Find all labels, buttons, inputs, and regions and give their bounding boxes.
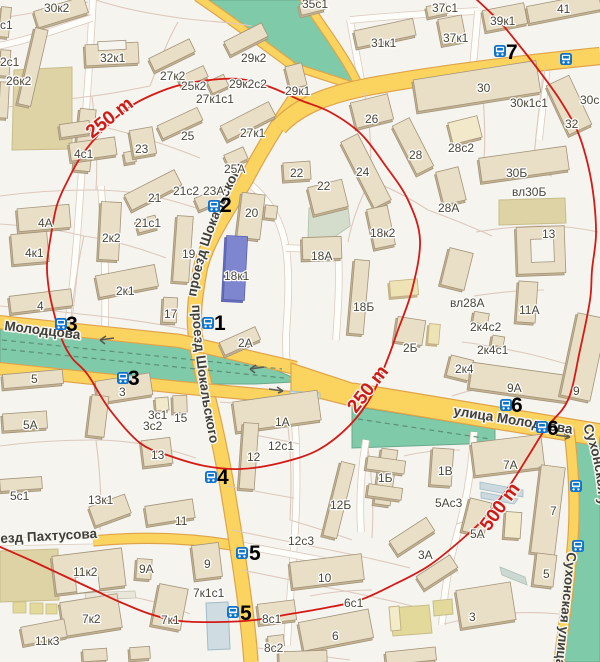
svg-text:25А: 25А bbox=[224, 162, 245, 176]
svg-text:5А: 5А bbox=[470, 527, 485, 541]
svg-text:6: 6 bbox=[547, 417, 559, 440]
svg-text:27к1: 27к1 bbox=[240, 126, 266, 140]
svg-text:вл30Б: вл30Б bbox=[512, 185, 546, 199]
svg-text:3: 3 bbox=[66, 313, 78, 336]
svg-text:32к1: 32к1 bbox=[100, 51, 126, 65]
svg-text:28: 28 bbox=[409, 148, 423, 162]
svg-text:4: 4 bbox=[217, 466, 229, 489]
svg-text:29к1: 29к1 bbox=[285, 84, 311, 98]
svg-text:39к1: 39к1 bbox=[490, 14, 516, 28]
svg-text:2к2: 2к2 bbox=[102, 231, 121, 245]
svg-text:6: 6 bbox=[332, 629, 339, 643]
svg-text:3: 3 bbox=[128, 367, 140, 390]
svg-text:20: 20 bbox=[245, 206, 259, 220]
svg-text:18к1: 18к1 bbox=[224, 269, 250, 283]
svg-text:13: 13 bbox=[151, 448, 165, 462]
svg-text:5: 5 bbox=[31, 372, 38, 386]
svg-text:4с1: 4с1 bbox=[74, 147, 94, 161]
svg-text:28с2: 28с2 bbox=[448, 141, 474, 155]
svg-text:11А: 11А bbox=[519, 303, 539, 317]
svg-text:9А: 9А bbox=[507, 381, 522, 395]
svg-text:25к2: 25к2 bbox=[181, 79, 207, 93]
svg-text:26: 26 bbox=[365, 112, 379, 126]
svg-text:7к2: 7к2 bbox=[82, 612, 101, 626]
svg-text:9А: 9А bbox=[139, 562, 154, 576]
svg-text:2к4: 2к4 bbox=[455, 362, 474, 376]
svg-text:17: 17 bbox=[164, 307, 178, 321]
svg-text:4: 4 bbox=[37, 299, 44, 313]
svg-text:7к1с1: 7к1с1 bbox=[193, 586, 225, 600]
svg-text:2к1: 2к1 bbox=[116, 284, 135, 298]
svg-text:10: 10 bbox=[318, 571, 332, 585]
svg-text:25: 25 bbox=[181, 129, 195, 143]
svg-text:2А: 2А bbox=[238, 336, 253, 350]
svg-text:23: 23 bbox=[135, 142, 149, 156]
svg-text:26к2: 26к2 bbox=[6, 74, 32, 88]
svg-text:2Б: 2Б bbox=[403, 341, 418, 355]
svg-text:2с1: 2с1 bbox=[0, 55, 20, 69]
svg-text:11к2: 11к2 bbox=[73, 565, 98, 579]
svg-text:12с1: 12с1 bbox=[268, 439, 294, 453]
svg-text:4А: 4А bbox=[38, 216, 53, 230]
svg-text:22: 22 bbox=[317, 179, 331, 193]
svg-text:12: 12 bbox=[247, 450, 261, 464]
svg-text:21с1: 21с1 bbox=[135, 216, 161, 230]
svg-text:8с2: 8с2 bbox=[264, 641, 284, 655]
svg-text:32: 32 bbox=[565, 117, 579, 131]
svg-text:29к2с2: 29к2с2 bbox=[229, 77, 267, 91]
svg-text:1В: 1В bbox=[438, 464, 453, 478]
svg-text:5: 5 bbox=[249, 542, 261, 565]
svg-text:4к1: 4к1 bbox=[25, 246, 44, 260]
svg-text:5: 5 bbox=[240, 602, 252, 625]
svg-text:3: 3 bbox=[469, 610, 476, 624]
svg-text:12с3: 12с3 bbox=[288, 534, 314, 548]
svg-text:28А: 28А bbox=[438, 201, 459, 215]
svg-text:30: 30 bbox=[477, 81, 491, 95]
svg-text:1Б: 1Б bbox=[378, 471, 393, 485]
svg-text:31к1: 31к1 bbox=[371, 36, 397, 50]
svg-text:1А: 1А bbox=[275, 415, 290, 429]
svg-text:11: 11 bbox=[175, 514, 188, 528]
svg-text:18к2: 18к2 bbox=[370, 226, 396, 240]
svg-text:вл28А: вл28А bbox=[450, 296, 484, 310]
svg-text:6: 6 bbox=[511, 394, 523, 417]
svg-text:29к2: 29к2 bbox=[241, 51, 267, 65]
svg-text:9: 9 bbox=[573, 384, 580, 398]
svg-text:13к1: 13к1 bbox=[88, 493, 114, 507]
svg-text:8с1: 8с1 bbox=[262, 612, 282, 626]
svg-text:30Б: 30Б bbox=[506, 166, 527, 180]
svg-text:30к2: 30к2 bbox=[44, 1, 70, 15]
svg-text:27к1с1: 27к1с1 bbox=[196, 92, 234, 106]
svg-text:18А: 18А bbox=[311, 249, 332, 263]
svg-text:7: 7 bbox=[550, 504, 557, 518]
svg-text:5: 5 bbox=[543, 567, 550, 581]
svg-text:9: 9 bbox=[204, 557, 211, 571]
svg-text:37к1: 37к1 bbox=[443, 31, 469, 45]
svg-text:3с2: 3с2 bbox=[143, 419, 163, 433]
svg-text:41: 41 bbox=[557, 2, 571, 16]
svg-text:3: 3 bbox=[119, 385, 126, 399]
svg-text:7А: 7А bbox=[503, 458, 518, 472]
svg-text:5А: 5А bbox=[23, 418, 38, 432]
svg-text:24: 24 bbox=[356, 165, 370, 179]
svg-text:30с2: 30с2 bbox=[580, 93, 600, 107]
svg-text:30к1с1: 30к1с1 bbox=[510, 96, 548, 110]
svg-text:3А: 3А bbox=[418, 548, 433, 562]
svg-text:2к4с2: 2к4с2 bbox=[470, 320, 502, 334]
svg-text:5с1: 5с1 bbox=[10, 489, 30, 503]
svg-text:2к4с1: 2к4с1 bbox=[477, 343, 509, 357]
svg-text:7: 7 bbox=[506, 41, 518, 64]
svg-text:5Ас3: 5Ас3 bbox=[435, 496, 463, 510]
svg-text:2: 2 bbox=[220, 194, 232, 217]
svg-text:6с1: 6с1 bbox=[344, 596, 364, 610]
svg-text:21с2: 21с2 bbox=[173, 184, 199, 198]
svg-text:22: 22 bbox=[290, 166, 304, 180]
svg-text:12Б: 12Б bbox=[330, 498, 351, 512]
svg-text:19: 19 bbox=[182, 247, 196, 261]
svg-text:18Б: 18Б bbox=[353, 300, 374, 314]
svg-text:с1: с1 bbox=[0, 18, 13, 32]
svg-text:35с1: 35с1 bbox=[302, 0, 328, 11]
svg-text:1: 1 bbox=[214, 312, 226, 335]
svg-text:7к1: 7к1 bbox=[161, 613, 180, 627]
svg-text:37с1: 37с1 bbox=[432, 1, 458, 15]
svg-text:13: 13 bbox=[542, 227, 556, 241]
svg-text:21: 21 bbox=[148, 191, 162, 205]
svg-text:15: 15 bbox=[174, 411, 188, 425]
svg-text:11к3: 11к3 bbox=[35, 634, 60, 648]
